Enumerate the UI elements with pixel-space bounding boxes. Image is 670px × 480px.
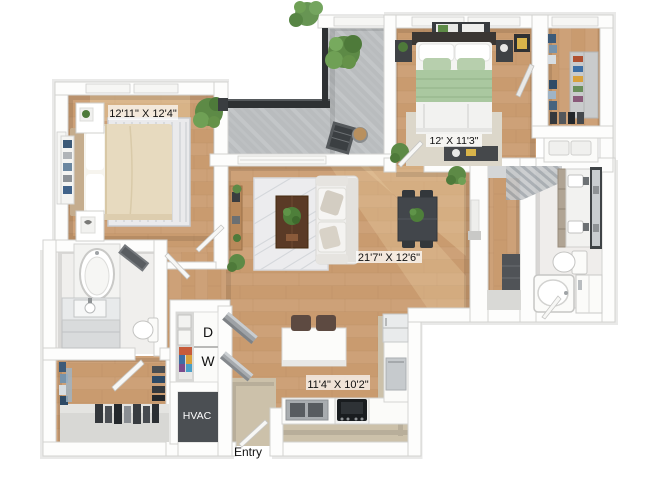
svg-text:HVAC: HVAC <box>183 410 212 422</box>
svg-text:12'11" X 12'4": 12'11" X 12'4" <box>109 108 177 120</box>
svg-text:D: D <box>203 324 213 340</box>
svg-text:11'4" X 10'2": 11'4" X 10'2" <box>307 379 368 391</box>
svg-text:21'7" X 12'6": 21'7" X 12'6" <box>358 252 420 264</box>
svg-text:W: W <box>201 353 215 369</box>
svg-text:Entry: Entry <box>234 445 262 459</box>
svg-text:12' X 11'3": 12' X 11'3" <box>430 135 479 147</box>
